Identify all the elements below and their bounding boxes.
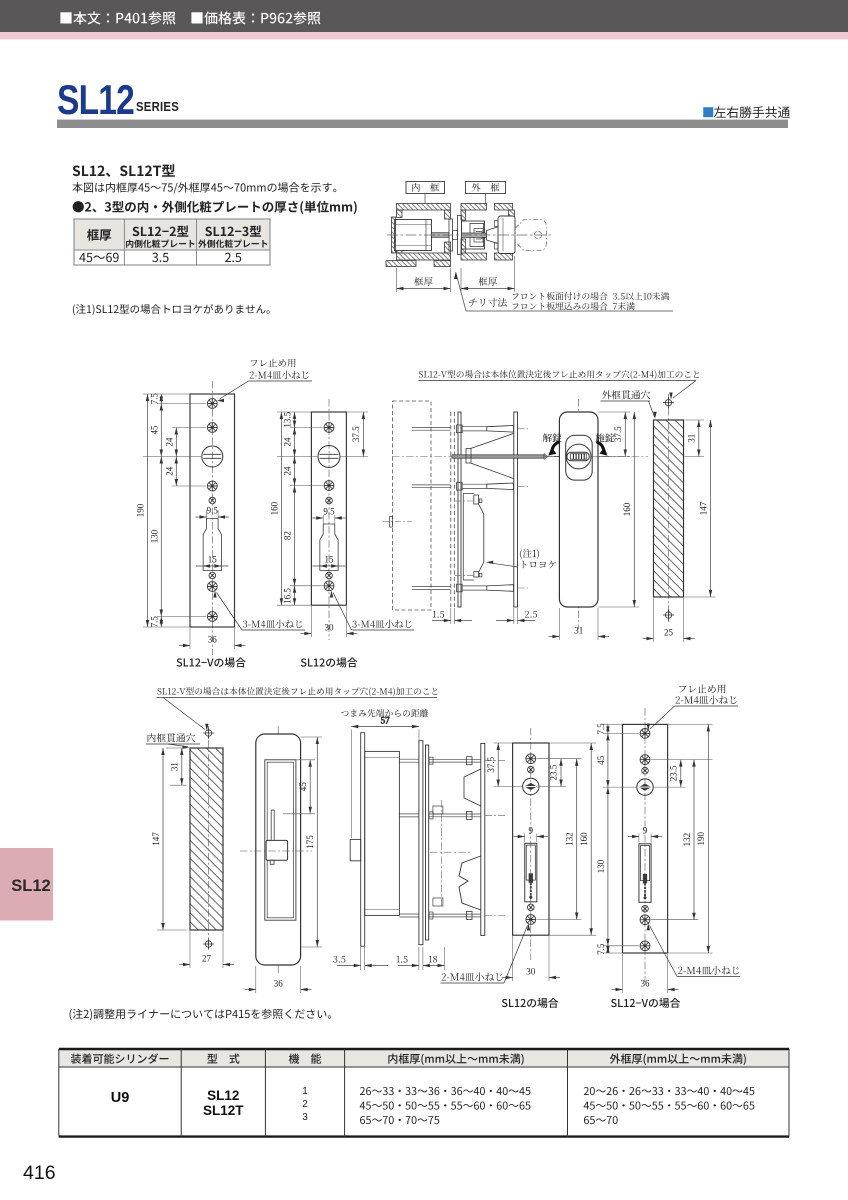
svg-text:190: 190 bbox=[136, 503, 146, 517]
svg-text:9.5: 9.5 bbox=[207, 506, 219, 516]
svg-text:31: 31 bbox=[170, 762, 180, 771]
svg-text:36: 36 bbox=[208, 635, 218, 645]
svg-text:23.5: 23.5 bbox=[549, 764, 559, 780]
svg-text:25: 25 bbox=[664, 628, 674, 638]
svg-text:132: 132 bbox=[682, 833, 692, 847]
svg-text:27: 27 bbox=[202, 954, 212, 964]
svg-text:36: 36 bbox=[641, 979, 651, 989]
svg-text:24: 24 bbox=[164, 437, 174, 447]
svg-text:9: 9 bbox=[643, 826, 648, 836]
svg-text:24: 24 bbox=[283, 466, 293, 476]
svg-text:2: 2 bbox=[302, 1099, 308, 1110]
svg-text:3: 3 bbox=[302, 1112, 308, 1123]
svg-text:30: 30 bbox=[526, 967, 536, 977]
svg-text:16.5: 16.5 bbox=[283, 588, 293, 604]
svg-text:9.5: 9.5 bbox=[323, 507, 335, 517]
svg-text:7.5: 7.5 bbox=[596, 723, 606, 735]
svg-text:SL12: SL12 bbox=[57, 76, 134, 123]
svg-text:36: 36 bbox=[274, 979, 284, 989]
svg-text:57: 57 bbox=[381, 716, 391, 726]
svg-text:15: 15 bbox=[325, 555, 335, 565]
svg-text:160: 160 bbox=[622, 502, 632, 516]
svg-text:7.5: 7.5 bbox=[596, 943, 606, 955]
svg-text:15: 15 bbox=[208, 555, 218, 565]
svg-text:82: 82 bbox=[283, 531, 293, 540]
svg-text:7.5: 7.5 bbox=[149, 616, 159, 628]
svg-text:1: 1 bbox=[302, 1086, 308, 1097]
svg-text:160: 160 bbox=[269, 501, 279, 515]
svg-text:45: 45 bbox=[596, 755, 606, 765]
svg-text:9: 9 bbox=[529, 826, 534, 836]
svg-text:37.5: 37.5 bbox=[613, 426, 623, 442]
svg-text:416: 416 bbox=[23, 1162, 56, 1184]
svg-text:13.5: 13.5 bbox=[283, 411, 293, 427]
svg-text:45: 45 bbox=[149, 425, 159, 435]
svg-text:132: 132 bbox=[565, 832, 575, 846]
svg-text:SL12T: SL12T bbox=[203, 1103, 244, 1118]
svg-text:37.5: 37.5 bbox=[486, 756, 496, 772]
svg-text:190: 190 bbox=[696, 831, 706, 845]
svg-text:31: 31 bbox=[574, 626, 583, 636]
svg-text:SL12: SL12 bbox=[11, 877, 50, 895]
svg-text:45: 45 bbox=[298, 782, 308, 792]
svg-text:SERIES: SERIES bbox=[136, 99, 179, 114]
svg-text:37.5: 37.5 bbox=[351, 426, 361, 442]
svg-text:147: 147 bbox=[151, 832, 161, 846]
svg-text:130: 130 bbox=[149, 529, 159, 543]
svg-text:SL12: SL12 bbox=[207, 1088, 239, 1103]
svg-text:7.5: 7.5 bbox=[149, 393, 159, 405]
svg-text:130: 130 bbox=[596, 859, 606, 873]
svg-text:24: 24 bbox=[283, 437, 293, 447]
svg-text:147: 147 bbox=[698, 501, 708, 515]
svg-text:23.5: 23.5 bbox=[669, 765, 679, 781]
svg-text:31: 31 bbox=[687, 434, 697, 443]
svg-text:175: 175 bbox=[305, 835, 315, 849]
svg-text:24: 24 bbox=[164, 466, 174, 476]
svg-text:30: 30 bbox=[324, 623, 334, 633]
svg-text:U9: U9 bbox=[111, 1090, 130, 1106]
svg-text:160: 160 bbox=[579, 832, 589, 846]
